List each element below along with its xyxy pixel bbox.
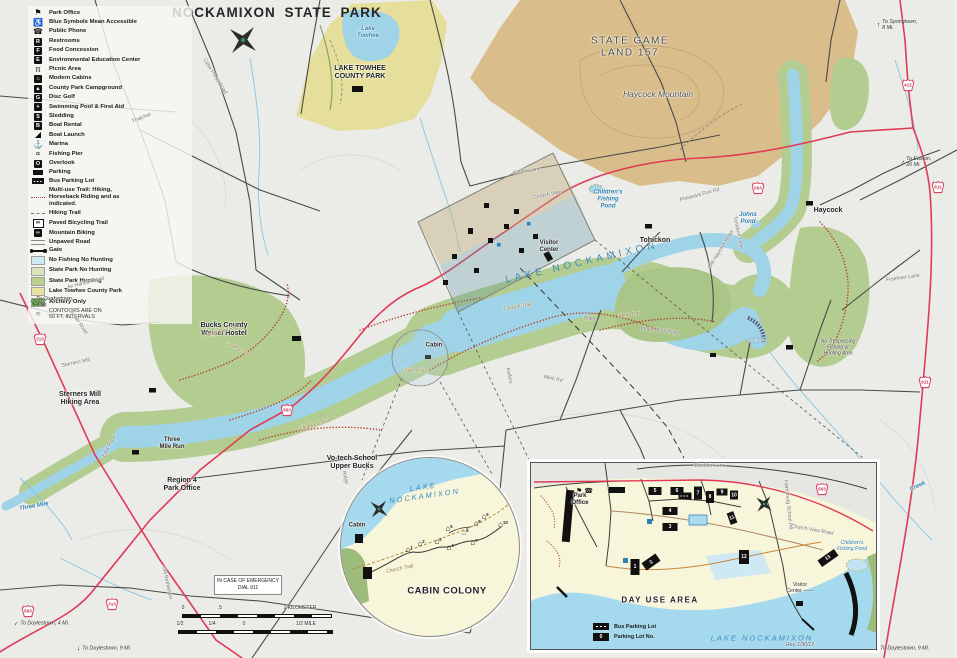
legend-item-parking: Parking: [31, 169, 189, 176]
legend-item-zone-state-park-hunting: State Park Hunting: [31, 277, 189, 286]
picnic-area-icon: π: [35, 66, 41, 74]
dayuse-inset-legend: Bus Parking Lot 0 Parking Lot No.: [593, 623, 656, 641]
park-office-icon: ⚑: [34, 9, 41, 17]
public-phone-label: Public Phone: [49, 28, 86, 35]
hiking-trail-icon: [31, 213, 45, 214]
zone-no-fishing-no-hunting-label: No Fishing No Hunting: [49, 257, 113, 264]
legend-item-hiking-trail: Hiking Trail: [31, 210, 189, 217]
disc-golf-label: Disc Golf: [49, 94, 75, 101]
boat-launch-icon: ◢: [35, 131, 41, 139]
legend-item-park-office: ⚑Park Office: [31, 9, 189, 17]
paved-bicycling-trail-icon-cell: ∞: [31, 219, 45, 228]
county-park-campground-icon: ▲: [34, 85, 42, 93]
sledding-icon-cell: S: [31, 113, 45, 121]
sledding-label: Sledding: [49, 113, 74, 120]
accessible-icon-cell: ♿: [31, 19, 45, 27]
restrooms-label: Restrooms: [49, 38, 80, 45]
cabin-6-icon: ⌂6: [461, 529, 468, 537]
legend-item-bus-parking-lot: Bus Parking Lot: [31, 178, 189, 185]
overlook-icon: O: [34, 160, 42, 168]
cabin-9-icon: ⌂9: [481, 513, 488, 521]
park-office-label: Park Office: [49, 10, 80, 17]
dayuse-legend-bus-row: Bus Parking Lot: [593, 623, 656, 630]
contours-icon: ≋: [35, 310, 41, 318]
legend-item-county-park-campground: ▲County Park Campground: [31, 85, 189, 93]
bus-parking-lot-icon: [593, 623, 609, 630]
cabin-4-icon: ⌂4: [446, 544, 453, 552]
cabin-2-icon: ⌂2: [417, 540, 424, 548]
hiking-trail-label: Hiking Trail: [49, 210, 81, 217]
legend-item-modern-cabins: ⌂Modern Cabins: [31, 75, 189, 83]
public-phone-icon: ☎: [33, 28, 43, 36]
zone-no-fishing-no-hunting-icon: [31, 256, 45, 265]
cabin-colony-inset: ⌂1⌂2⌂3⌂4⌂5⌂6⌂7⌂8⌂9⌂10: [340, 457, 520, 637]
cabin-10-icon: ⌂10: [498, 521, 508, 529]
parking-lot-number-label: Parking Lot No.: [614, 634, 655, 640]
picnic-area-icon-cell: π: [31, 66, 45, 74]
hiking-trail-icon-cell: [31, 213, 45, 214]
marina-label: Marina: [49, 141, 68, 148]
legend-item-unpaved-road: Unpaved Road: [31, 239, 189, 246]
zone-state-park-no-hunting-label: State Park No Hunting: [49, 267, 111, 274]
emergency-line1: IN CASE OF EMERGENCY: [215, 578, 281, 585]
parking-lot-1: 1: [631, 559, 640, 575]
paved-bicycling-trail-icon: ∞: [33, 219, 44, 228]
parking-icon-cell: [31, 170, 45, 175]
parking-icon: [33, 170, 43, 175]
parking-lot-5: 5: [649, 487, 662, 495]
park-office-icon-cell: ⚑: [31, 9, 45, 17]
mountain-biking-label: Mountain Biking: [49, 230, 95, 237]
marina-icon: ⚓: [33, 141, 43, 149]
parking-label: Parking: [49, 169, 71, 176]
bus-parking-lot-label: Bus Parking Lot: [614, 624, 656, 630]
legend-item-overlook: OOverlook: [31, 160, 189, 168]
legend-item-zone-lake-towhee-county-park: Lake Towhee County Park: [31, 287, 189, 296]
legend-item-swimming-pool: +Swimming Pool & First Aid: [31, 103, 189, 111]
zone-lake-towhee-county-park-icon: [31, 287, 45, 296]
fishing-pier-label: Fishing Pier: [49, 151, 83, 158]
county-park-campground-label: County Park Campground: [49, 85, 122, 92]
boat-launch-label: Boat Launch: [49, 132, 85, 139]
legend-item-env-ed-center: EEnvironmental Education Center: [31, 56, 189, 64]
unpaved-road-icon-cell: [31, 240, 45, 245]
legend-item-marina: ⚓Marina: [31, 141, 189, 149]
zone-state-park-no-hunting-icon: [31, 267, 45, 276]
emergency-line2: DIAL 911: [215, 585, 281, 592]
multi-use-trail-icon: [31, 197, 45, 198]
zone-lake-towhee-county-park-icon-cell: [31, 287, 45, 296]
disc-golf-icon-cell: G: [31, 94, 45, 102]
paved-bicycling-trail-label: Paved Bicycling Trail: [49, 220, 108, 227]
day-use-area-inset: ⚑ ☎ 12345678910111213 Bus Parking Lot 0 …: [530, 462, 877, 650]
gate-label: Gate: [49, 247, 62, 254]
legend-item-picnic-area: πPicnic Area: [31, 66, 189, 74]
fishing-pier-icon: ∝: [35, 150, 41, 158]
legend-item-food-concession: FFood Concession: [31, 47, 189, 55]
food-concession-icon: F: [34, 47, 42, 55]
scale-bar-kilometer: [182, 614, 332, 618]
zone-lake-towhee-county-park-label: Lake Towhee County Park: [49, 288, 122, 295]
sledding-icon: S: [34, 113, 42, 121]
swimming-pool-label: Swimming Pool & First Aid: [49, 104, 124, 111]
gate-icon: [32, 250, 45, 252]
parking-lot-3: 3: [663, 523, 678, 531]
gate-icon-cell: [31, 250, 45, 252]
emergency-box: IN CASE OF EMERGENCY DIAL 911: [214, 575, 282, 595]
bus-parking-lot-label: Bus Parking Lot: [49, 178, 94, 185]
svg-text:⚑ ☎: ⚑ ☎: [576, 487, 593, 495]
parking-lot-4: 4: [663, 507, 678, 515]
public-phone-icon-cell: ☎: [31, 28, 45, 36]
towhee-bus-lot-icon: [352, 86, 363, 92]
swimming-pool-icon: +: [34, 103, 42, 111]
parking-lot-10: 10: [730, 491, 738, 500]
legend-item-accessible: ♿Blue Symbols Mean Accessible: [31, 19, 189, 27]
legend-item-public-phone: ☎Public Phone: [31, 28, 189, 36]
restrooms-icon-cell: R: [31, 38, 45, 46]
park-map: ⌂1⌂2⌂3⌂4⌂5⌂6⌂7⌂8⌂9⌂10: [0, 0, 957, 658]
legend-item-zone-archery-only: Archery Only: [31, 298, 189, 307]
boat-launch-icon-cell: ◢: [31, 131, 45, 139]
disc-golf-icon: G: [34, 94, 42, 102]
zone-no-fishing-no-hunting-icon-cell: [31, 256, 45, 265]
multi-use-trail-label: Multi-use Trail: Hiking, Horseback Ridin…: [49, 187, 119, 209]
legend-item-paved-bicycling-trail: ∞Paved Bicycling Trail: [31, 219, 189, 228]
accessible-label: Blue Symbols Mean Accessible: [49, 19, 137, 26]
parking-lot-7: 7: [694, 487, 702, 500]
mountain-biking-icon: ∞: [34, 229, 42, 237]
env-ed-center-icon-cell: E: [31, 56, 45, 64]
overlook-label: Overlook: [49, 160, 75, 167]
cabin-5-icon: ⌂5: [445, 525, 452, 533]
legend-item-sledding: SSledding: [31, 113, 189, 121]
bus-parking-lot-icon-cell: [31, 178, 45, 184]
modern-cabins-icon-cell: ⌂: [31, 75, 45, 83]
zone-state-park-hunting-icon: [31, 277, 45, 286]
inset-bus-parking-lot: [679, 493, 692, 500]
restrooms-icon: R: [34, 38, 42, 46]
cabin-7-icon: ⌂7: [470, 539, 477, 547]
boat-rental-icon-cell: B: [31, 122, 45, 130]
cabin-3-icon: ⌂3: [434, 538, 441, 546]
zone-archery-only-icon: [31, 298, 45, 307]
cabin-1-icon: ⌂1: [405, 546, 412, 554]
zone-state-park-hunting-icon-cell: [31, 277, 45, 286]
overlook-icon-cell: O: [31, 160, 45, 168]
legend-item-restrooms: RRestrooms: [31, 38, 189, 46]
modern-cabins-label: Modern Cabins: [49, 75, 92, 82]
accessible-icon: ♿: [33, 19, 43, 27]
food-concession-icon-cell: F: [31, 47, 45, 55]
picnic-area-label: Picnic Area: [49, 66, 81, 73]
legend-item-boat-rental: BBoat Rental: [31, 122, 189, 130]
zone-state-park-hunting-label: State Park Hunting: [49, 278, 102, 285]
parking-lot-number-icon: 0: [593, 633, 609, 641]
dayuse-legend-lot-row: 0 Parking Lot No.: [593, 633, 656, 641]
legend-item-mountain-biking: ∞Mountain Biking: [31, 229, 189, 237]
boat-rental-icon: B: [34, 122, 42, 130]
env-ed-center-label: Environmental Education Center: [49, 57, 140, 64]
legend-panel: ⚑Park Office♿Blue Symbols Mean Accessibl…: [28, 6, 192, 324]
zone-archery-only-label: Archery Only: [49, 299, 86, 306]
parking-lot-12: 12: [739, 550, 749, 564]
fishing-pier-icon-cell: ∝: [31, 150, 45, 158]
compass-rose: [219, 16, 267, 64]
multi-use-trail-icon-cell: [31, 197, 45, 198]
legend-item-gate: Gate: [31, 247, 189, 254]
unpaved-road-label: Unpaved Road: [49, 239, 90, 246]
legend-item-disc-golf: GDisc Golf: [31, 94, 189, 102]
modern-cabins-icon: ⌂: [34, 75, 42, 83]
bus-parking-lot-icon: [32, 178, 44, 184]
food-concession-label: Food Concession: [49, 47, 98, 54]
county-park-campground-icon-cell: ▲: [31, 85, 45, 93]
cabin-8-icon: ⌂8: [473, 520, 480, 528]
parking-lot-8: 8: [706, 491, 714, 503]
boat-rental-label: Boat Rental: [49, 122, 82, 129]
mountain-biking-icon-cell: ∞: [31, 229, 45, 237]
unpaved-road-icon: [31, 240, 45, 245]
zone-state-park-no-hunting-icon-cell: [31, 267, 45, 276]
map-title: NOCKAMIXON STATE PARK: [172, 5, 382, 20]
swimming-pool-icon-cell: +: [31, 103, 45, 111]
zone-archery-only-icon-cell: [31, 298, 45, 307]
legend-contours-note: ≋ CONTOURS ARE ON50 FT. INTERVALS: [31, 308, 189, 320]
scale-bar-mile: [178, 630, 333, 634]
legend-item-boat-launch: ◢Boat Launch: [31, 131, 189, 139]
legend-item-zone-state-park-no-hunting: State Park No Hunting: [31, 267, 189, 276]
marina-icon-cell: ⚓: [31, 141, 45, 149]
legend-item-multi-use-trail: Multi-use Trail: Hiking, Horseback Ridin…: [31, 187, 189, 209]
legend-item-zone-no-fishing-no-hunting: No Fishing No Hunting: [31, 256, 189, 265]
legend-item-fishing-pier: ∝Fishing Pier: [31, 150, 189, 158]
parking-lot-9: 9: [717, 489, 728, 496]
env-ed-center-icon: E: [34, 56, 42, 64]
